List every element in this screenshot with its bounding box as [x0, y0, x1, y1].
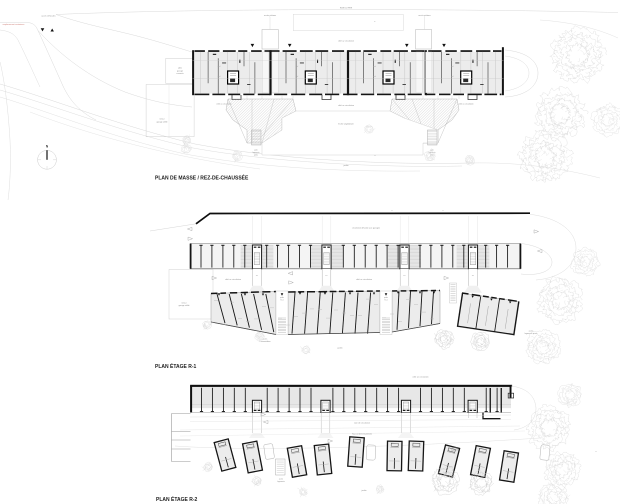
- svg-text:R+1: R+1: [385, 300, 388, 302]
- svg-text:couverts: couverts: [176, 72, 183, 75]
- svg-text:a: a: [443, 210, 444, 212]
- svg-text:PLAN ÉTAGE R-1: PLAN ÉTAGE R-1: [155, 362, 197, 370]
- svg-text:jardin: jardin: [343, 165, 349, 167]
- svg-text:côté av circulation: côté av circulation: [356, 278, 372, 281]
- svg-text:garage utilité: garage utilité: [179, 304, 190, 307]
- svg-text:accès: accès: [279, 479, 283, 481]
- svg-text:accès piétons: accès piétons: [264, 14, 276, 17]
- svg-text:a: a: [392, 210, 393, 212]
- svg-text:Raccordement piétons: Raccordement piétons: [352, 433, 372, 436]
- svg-text:côté av circulation: côté av circulation: [338, 104, 354, 107]
- svg-text:palier: palier: [384, 297, 388, 299]
- svg-text:asc: asc: [472, 275, 474, 277]
- svg-text:garage: garage: [177, 69, 183, 72]
- svg-text:asc: asc: [325, 275, 327, 277]
- svg-text:jardin: jardin: [337, 348, 343, 350]
- svg-text:a: a: [375, 155, 376, 157]
- svg-text:RUE DU PER: RUE DU PER: [340, 8, 353, 10]
- svg-text:voie de circulation: voie de circulation: [354, 422, 370, 425]
- svg-text:friche végétalisée: friche végétalisée: [338, 123, 354, 126]
- svg-text:a: a: [374, 21, 375, 23]
- svg-text:PLAN DE MASSE / REZ-DE-CHAUSSÉ: PLAN DE MASSE / REZ-DE-CHAUSSÉE: [155, 173, 249, 181]
- svg-text:côté av circulation: côté av circulation: [458, 103, 473, 106]
- svg-text:abris: abris: [178, 67, 182, 70]
- svg-text:logements: logements: [451, 449, 459, 452]
- svg-text:retour: retour: [160, 118, 165, 121]
- svg-text:côté av circulation: côté av circulation: [338, 40, 354, 43]
- svg-text:côté av circulation: côté av circulation: [225, 278, 241, 281]
- svg-text:a: a: [596, 451, 597, 453]
- svg-text:logements privés: logements privés: [525, 332, 538, 335]
- svg-text:asc: asc: [403, 275, 405, 277]
- svg-text:côté av circulation: côté av circulation: [412, 376, 428, 379]
- svg-text:garage utilité: garage utilité: [157, 120, 168, 123]
- svg-text:R+1: R+1: [281, 300, 284, 302]
- svg-text:PLAN ÉTAGE R-2: PLAN ÉTAGE R-2: [156, 495, 198, 503]
- svg-text:retour: retour: [182, 301, 187, 304]
- svg-text:accès piétons: accès piétons: [418, 14, 430, 17]
- svg-text:accès véhicules: accès véhicules: [41, 16, 55, 18]
- svg-text:palier: palier: [280, 297, 284, 299]
- svg-text:circulation dévolue aux garage: circulation dévolue aux garages: [352, 227, 380, 230]
- svg-text:asc: asc: [256, 275, 258, 277]
- svg-text:jardin: jardin: [361, 490, 367, 492]
- svg-text:emplacement containers: emplacement containers: [3, 23, 25, 26]
